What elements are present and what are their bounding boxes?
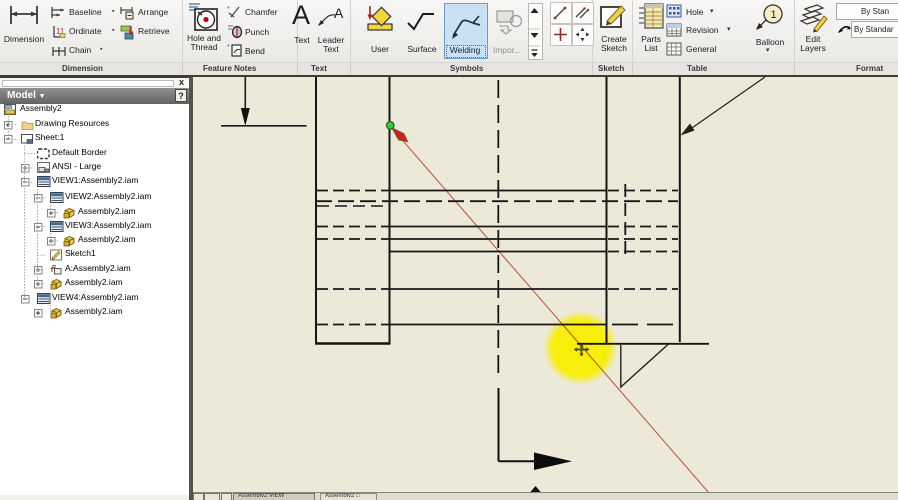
- svg-text:*: *: [227, 6, 230, 13]
- svg-text:A: A: [334, 5, 344, 21]
- svg-text:1: 1: [771, 9, 777, 21]
- svg-text:*: *: [227, 44, 230, 51]
